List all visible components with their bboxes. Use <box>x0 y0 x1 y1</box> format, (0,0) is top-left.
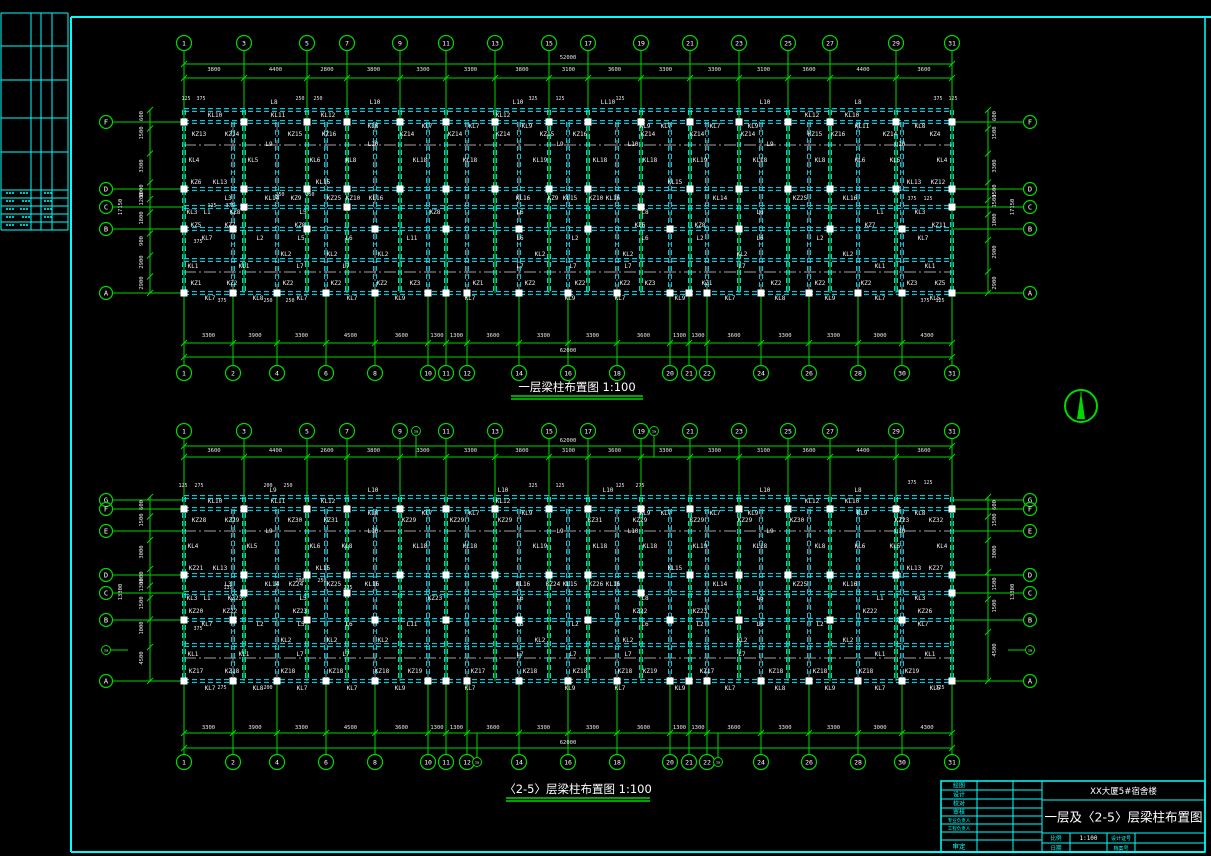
axis-number-label: 25 <box>784 427 792 435</box>
dim-value: 4400 <box>856 448 869 454</box>
axis-number-label: 13 <box>491 427 499 435</box>
axis-number-label: 26 <box>805 758 813 766</box>
beam-label: KL13 <box>213 179 228 186</box>
dim-value: 4400 <box>856 67 869 73</box>
beam-label: KL7 <box>297 685 308 692</box>
beam-label: KL15 <box>316 179 331 186</box>
beam-label: KL9 <box>640 510 651 517</box>
archive-no-label: 档案号 <box>1113 845 1128 852</box>
dim-value-vertical: 4500 <box>992 643 998 656</box>
axis-letter-label-small: 1a <box>104 649 108 653</box>
beam-label: L1 <box>203 595 211 602</box>
beam-label: KZ23 <box>293 608 308 615</box>
title-block-row-label: 绘图 <box>953 782 965 790</box>
dim-total-value: 62000 <box>560 348 577 354</box>
beam-label: KZ14 <box>448 131 463 138</box>
beam-label: L3 <box>224 195 232 202</box>
beam-label: KL2 <box>843 637 854 644</box>
dim-value: 3300 <box>778 725 791 731</box>
column-square <box>492 119 499 126</box>
offset-dim-label: 200 <box>295 578 304 584</box>
axis-letter-label: C <box>1028 589 1032 597</box>
column-square <box>736 617 743 624</box>
column-square <box>546 119 553 126</box>
beam-label: L8 <box>641 595 649 602</box>
beam-label: KL9 <box>395 295 406 302</box>
dim-value: 3300 <box>586 725 599 731</box>
sheet-title: 一层及〈2-5〉层梁柱布置图 <box>1045 810 1203 825</box>
dim-value-vertical: 1300 <box>139 578 145 591</box>
column-square <box>443 226 450 233</box>
beam-label: KL5 <box>890 543 901 550</box>
column-square <box>304 119 311 126</box>
axis-number-label: 31 <box>948 427 956 435</box>
beam-label: KL7 <box>347 685 358 692</box>
beam-label: L7 <box>738 651 746 658</box>
beam-label: KZ10 <box>346 195 361 202</box>
axis-number-label: 12 <box>463 369 471 377</box>
column-square <box>949 572 956 579</box>
beam-label: L10 <box>628 141 639 148</box>
beam-label: KL6 <box>855 157 866 164</box>
beam-label: KL16 <box>843 581 858 588</box>
axis-number-label: 9 <box>398 39 402 47</box>
axis-number-label: 10 <box>424 758 432 766</box>
dim-value: 3000 <box>873 725 886 731</box>
beam-label: KL10 <box>208 112 223 119</box>
beam-label: KL1 <box>925 651 936 658</box>
beam-label: KZ7 <box>225 222 236 229</box>
offset-dim-label: 125 <box>555 96 564 102</box>
axis-number-label: 21 <box>685 758 693 766</box>
beam-label: KZ2 <box>815 280 826 287</box>
beam-label: KZ17 <box>189 668 204 675</box>
axis-number-label: 1 <box>182 369 186 377</box>
beam-label: L2 <box>256 621 264 628</box>
beam-label: KL7 <box>615 685 626 692</box>
beam-label: KL18 <box>593 543 608 550</box>
beam-label: KL16 <box>606 195 621 202</box>
beam-label: KZ31 <box>588 517 603 524</box>
cad-drawing-canvas[interactable]: FDCBAFDCBA135791113151719212325272931124… <box>0 0 1211 856</box>
dim-value: 4300 <box>920 725 933 731</box>
beam-label: KL3 <box>915 595 926 602</box>
offset-dim-label: 250 <box>317 578 326 584</box>
column-square <box>758 678 765 685</box>
dim-total-vertical: 13300 <box>118 584 124 601</box>
beam-label: KL7 <box>297 295 308 302</box>
beam-label: L10 <box>760 487 771 494</box>
beam-label: L6 <box>516 235 524 242</box>
beam-label: KL7 <box>918 621 929 628</box>
column-square <box>241 506 248 513</box>
beam-label: L9 <box>556 528 564 535</box>
beam-label: L2 <box>571 235 579 242</box>
beam-label: L6 <box>756 235 764 242</box>
axis-number-label: 26 <box>805 369 813 377</box>
beam-label: KZ13 <box>192 131 207 138</box>
beam-label: KL7 <box>465 685 476 692</box>
beam-label: KZ22 <box>223 608 238 615</box>
dim-value: 3100 <box>562 448 575 454</box>
beam-label: KZ19 <box>643 668 658 675</box>
beam-label: KZ18 <box>859 668 874 675</box>
column-square <box>443 290 450 297</box>
beam-label: KL2 <box>623 637 634 644</box>
beam-label: KL10 <box>845 498 860 505</box>
column-square <box>949 590 956 597</box>
beam-label: L2 <box>256 235 264 242</box>
offset-dim-label: 325 <box>528 96 537 102</box>
axis-number-label: 31 <box>948 39 956 47</box>
beam-label: L9 <box>265 528 273 535</box>
axis-letter-label: C <box>1028 203 1032 211</box>
column-square <box>323 290 330 297</box>
beam-label: KZ16 <box>322 131 337 138</box>
beam-label: KL2 <box>281 251 292 258</box>
axis-number-label: 6 <box>324 369 328 377</box>
column-square <box>585 617 592 624</box>
beam-label: KL8 <box>915 510 926 517</box>
dim-value: 3800 <box>367 67 380 73</box>
axis-number-label: 31 <box>948 758 956 766</box>
offset-dim-label: 325 <box>528 483 537 489</box>
dim-value: 3600 <box>207 448 220 454</box>
dim-value-vertical: 1000 <box>139 621 145 634</box>
beam-label: L8 <box>641 209 649 216</box>
beam-label: KL2 <box>737 637 748 644</box>
column-square <box>443 506 450 513</box>
column-square <box>899 290 906 297</box>
dim-value: 3300 <box>827 333 840 339</box>
column-square <box>949 204 956 211</box>
dim-value-vertical: 1500 <box>992 577 998 590</box>
beam-label: KL10 <box>845 112 860 119</box>
dim-value: 3300 <box>659 67 672 73</box>
axis-number-label: 21 <box>685 369 693 377</box>
offset-dim-label: 375 <box>193 239 202 245</box>
column-square <box>344 506 351 513</box>
axis-number-label: 27 <box>826 427 834 435</box>
beam-label: KZ2 <box>227 280 238 287</box>
column-square <box>372 290 379 297</box>
axis-number-label: 18 <box>613 758 621 766</box>
beam-label: KL12 <box>805 112 820 119</box>
dim-value-vertical: 900 <box>139 236 145 246</box>
column-square <box>443 572 450 579</box>
dim-value: 2600 <box>320 448 333 454</box>
beam-label: KL8 <box>815 543 826 550</box>
beam-label: KL2 <box>378 637 389 644</box>
column-square <box>492 186 499 193</box>
beam-label: L7 <box>624 263 632 270</box>
beam-label: KL3 <box>915 209 926 216</box>
beam-label: KL19 <box>533 157 548 164</box>
beam-label: KL15 <box>668 565 683 572</box>
column-square <box>565 678 572 685</box>
beam-label: L9 <box>556 141 564 148</box>
column-square <box>585 226 592 233</box>
column-square <box>949 119 956 126</box>
axis-letter-label: D <box>1028 185 1032 193</box>
column-square <box>949 290 956 297</box>
beam-label: L5 <box>297 235 305 242</box>
beam-label: KZ7 <box>865 222 876 229</box>
column-square <box>230 617 237 624</box>
dim-value: 3600 <box>802 448 815 454</box>
beam-label: KL16 <box>516 195 531 202</box>
axis-number-label: 10 <box>424 369 432 377</box>
column-square <box>516 678 523 685</box>
column-square <box>181 290 188 297</box>
axis-number-label: 7 <box>345 39 349 47</box>
dim-value-vertical: 2900 <box>992 245 998 258</box>
dim-value: 3600 <box>608 448 621 454</box>
dim-value: 3600 <box>608 67 621 73</box>
beam-label: L7 <box>342 263 350 270</box>
column-square <box>344 572 351 579</box>
offset-dim-label: 375 <box>193 626 202 632</box>
offset-dim-label: 275 <box>635 483 644 489</box>
column-square <box>181 678 188 685</box>
beam-label: KZ2 <box>620 280 631 287</box>
column-square <box>687 506 694 513</box>
beam-label: L7 <box>569 263 577 270</box>
beam-label: L10 <box>603 487 614 494</box>
dim-value: 3800 <box>207 67 220 73</box>
beam-label: KL9 <box>565 295 576 302</box>
axis-letter-label: B <box>1028 616 1032 624</box>
beam-label: L8 <box>854 99 862 106</box>
column-square <box>758 290 765 297</box>
beam-label: KL9 <box>565 685 576 692</box>
column-square <box>585 506 592 513</box>
offset-dim-label: 250 <box>285 298 294 304</box>
beam-label: KL7 <box>918 235 929 242</box>
dim-value: 3300 <box>202 333 215 339</box>
axis-number-label: 31 <box>948 369 956 377</box>
dim-value-vertical: 1500 <box>139 126 145 139</box>
beam-label: KL15 <box>668 179 683 186</box>
dim-value: 3600 <box>395 725 408 731</box>
beam-label: KL5 <box>890 157 901 164</box>
dim-value: 3900 <box>248 725 261 731</box>
cert-no-label: 设计证号 <box>1111 835 1131 842</box>
dim-value-vertical: 600 <box>139 111 145 121</box>
dim-value: 1300 <box>673 333 686 339</box>
dim-value-vertical: 2900 <box>139 276 145 289</box>
dim-value: 1300 <box>450 725 463 731</box>
beam-label: KL1 <box>875 651 886 658</box>
beam-label: KL14 <box>713 195 728 202</box>
beam-label: KL16 <box>843 195 858 202</box>
beam-label: KZ3 <box>410 280 421 287</box>
offset-dim-label: 125 <box>207 203 216 209</box>
column-square <box>397 572 404 579</box>
beam-label: L1 <box>876 595 884 602</box>
axis-number-label: 6 <box>324 758 328 766</box>
beam-label: L7 <box>342 651 350 658</box>
beam-label: L8 <box>270 99 278 106</box>
beam-label: KZ23 <box>693 608 708 615</box>
axis-number-label: 23 <box>735 427 743 435</box>
beam-label: KL3 <box>187 595 198 602</box>
beam-label: L10 <box>368 141 379 148</box>
beam-label: KL9 <box>748 510 759 517</box>
column-square <box>893 572 900 579</box>
beam-label: KZ29 <box>690 517 705 524</box>
beam-label: KZ2 <box>331 280 342 287</box>
beam-label: KL11 <box>271 112 286 119</box>
beam-label: KL5 <box>248 157 259 164</box>
beam-label: KZ2 <box>283 280 294 287</box>
dim-total-value: 62000 <box>560 438 577 444</box>
beam-label: KZ18 <box>813 668 828 675</box>
beam-label: KZ25 <box>793 195 808 202</box>
beam-label: KL1 <box>239 651 250 658</box>
offset-dim-label: 125 <box>923 196 932 202</box>
beam-label: L6 <box>756 595 764 602</box>
beam-label: KZ8 <box>230 209 241 216</box>
beam-label: KZ1 <box>702 280 713 287</box>
column-square <box>806 678 813 685</box>
offset-dim-label: 125 <box>178 483 187 489</box>
beam-label: KZ17 <box>700 668 715 675</box>
beam-label: L2 <box>696 621 704 628</box>
dim-value-vertical: 1500 <box>992 126 998 139</box>
axis-number-label: 23 <box>735 39 743 47</box>
beam-label: KL19 <box>533 543 548 550</box>
beam-label: KL7 <box>205 685 216 692</box>
dim-value-vertical: 600 <box>992 111 998 121</box>
axis-number-label: 24 <box>757 369 765 377</box>
axis-number-label: 20 <box>666 758 674 766</box>
beam-label: KL15 <box>316 565 331 572</box>
axis-number-label-small: 1a <box>475 761 479 765</box>
dim-total-vertical: 13300 <box>1010 584 1016 601</box>
beam-label: KZ3 <box>645 280 656 287</box>
beam-label: L10 <box>368 487 379 494</box>
beam-label: KL2 <box>535 251 546 258</box>
column-square <box>806 290 813 297</box>
dim-value: 3800 <box>367 448 380 454</box>
column-square <box>704 290 711 297</box>
dim-value: 4300 <box>920 333 933 339</box>
beam-label: KL4 <box>188 543 199 550</box>
beam-label: KZ9 <box>548 195 559 202</box>
axis-number-label: 7 <box>345 427 349 435</box>
column-square <box>893 506 900 513</box>
title-block-row-label: 专业负责人 <box>948 817 971 824</box>
beam-label: L6 <box>756 209 764 216</box>
beam-label: KL2 <box>327 251 338 258</box>
column-square <box>372 617 379 624</box>
beam-label: KL9 <box>675 295 686 302</box>
title-block-row-label: 工程负责人 <box>948 825 971 832</box>
beam-label: KL15 <box>563 195 578 202</box>
dim-value-vertical: 1000 <box>992 213 998 226</box>
beam-label: L6 <box>641 621 649 628</box>
beam-label: KL2 <box>843 251 854 258</box>
column-square <box>397 119 404 126</box>
axis-number-label: 15 <box>545 427 553 435</box>
offset-dim-label: 250 <box>283 483 292 489</box>
beam-label: KL7 <box>347 295 358 302</box>
column-square <box>425 290 432 297</box>
beam-label: L11 <box>407 621 418 628</box>
beam-label: KZ4 <box>930 131 941 138</box>
axis-number-label: 11 <box>442 427 450 435</box>
axis-number-label: 8 <box>373 369 377 377</box>
axis-letter-label: B <box>104 225 108 233</box>
offset-dim-label: 125 <box>615 483 624 489</box>
beam-label: KZ32 <box>929 517 944 524</box>
offset-dim-label: 250 <box>275 192 284 198</box>
column-square <box>736 506 743 513</box>
column-square <box>181 226 188 233</box>
dim-value: 1300 <box>673 725 686 731</box>
axis-number-label: 30 <box>898 758 906 766</box>
column-square <box>614 678 621 685</box>
beam-label: KL2 <box>327 637 338 644</box>
beam-label: L2 <box>571 621 579 628</box>
column-square <box>304 572 311 579</box>
beam-label: KZ23 <box>228 595 243 602</box>
dim-value: 4500 <box>344 333 357 339</box>
offset-dim-label: 250 <box>295 96 304 102</box>
beam-label: KZ2 <box>525 280 536 287</box>
column-square <box>181 186 188 193</box>
dim-value-vertical: 3300 <box>992 159 998 172</box>
title-block-row-label: 设计 <box>953 791 965 799</box>
beam-label: KZ23 <box>428 595 443 602</box>
column-square <box>949 678 956 685</box>
axis-letter-label: C <box>104 589 108 597</box>
beam-label: KZ1 <box>473 280 484 287</box>
offset-dim-label: 135 <box>223 585 232 591</box>
beam-label: KL14 <box>265 581 280 588</box>
beam-label: KL7 <box>710 123 721 130</box>
axis-number-label-small: 1a <box>652 430 656 434</box>
offset-dim-label: 250 <box>313 96 322 102</box>
column-square <box>230 678 237 685</box>
beam-label: KL7 <box>661 510 672 517</box>
beam-label: L10 <box>370 99 381 106</box>
dim-value-vertical: 2900 <box>992 276 998 289</box>
axis-number-label: 14 <box>515 758 523 766</box>
beam-label: KZ14 <box>883 131 898 138</box>
column-square <box>667 617 674 624</box>
dim-value: 3600 <box>727 725 740 731</box>
beam-label: KZ18 <box>281 668 296 675</box>
approve-label: 审定 <box>953 842 967 851</box>
dim-value: 2800 <box>320 67 333 73</box>
beam-label: L7 <box>296 263 304 270</box>
beam-label: KZ25 <box>793 581 808 588</box>
beam-label: L6 <box>345 621 353 628</box>
beam-label: KZ10 <box>589 195 604 202</box>
dim-value: 4400 <box>269 448 282 454</box>
axis-letter-label: F <box>104 505 108 513</box>
dim-value: 3600 <box>917 67 930 73</box>
dim-value: 3300 <box>537 333 550 339</box>
offset-dim-label: 375 <box>907 480 916 486</box>
dim-value: 3300 <box>295 725 308 731</box>
dim-value: 3300 <box>586 333 599 339</box>
beam-label: KL6 <box>310 543 321 550</box>
column-square <box>899 226 906 233</box>
column-square <box>546 506 553 513</box>
